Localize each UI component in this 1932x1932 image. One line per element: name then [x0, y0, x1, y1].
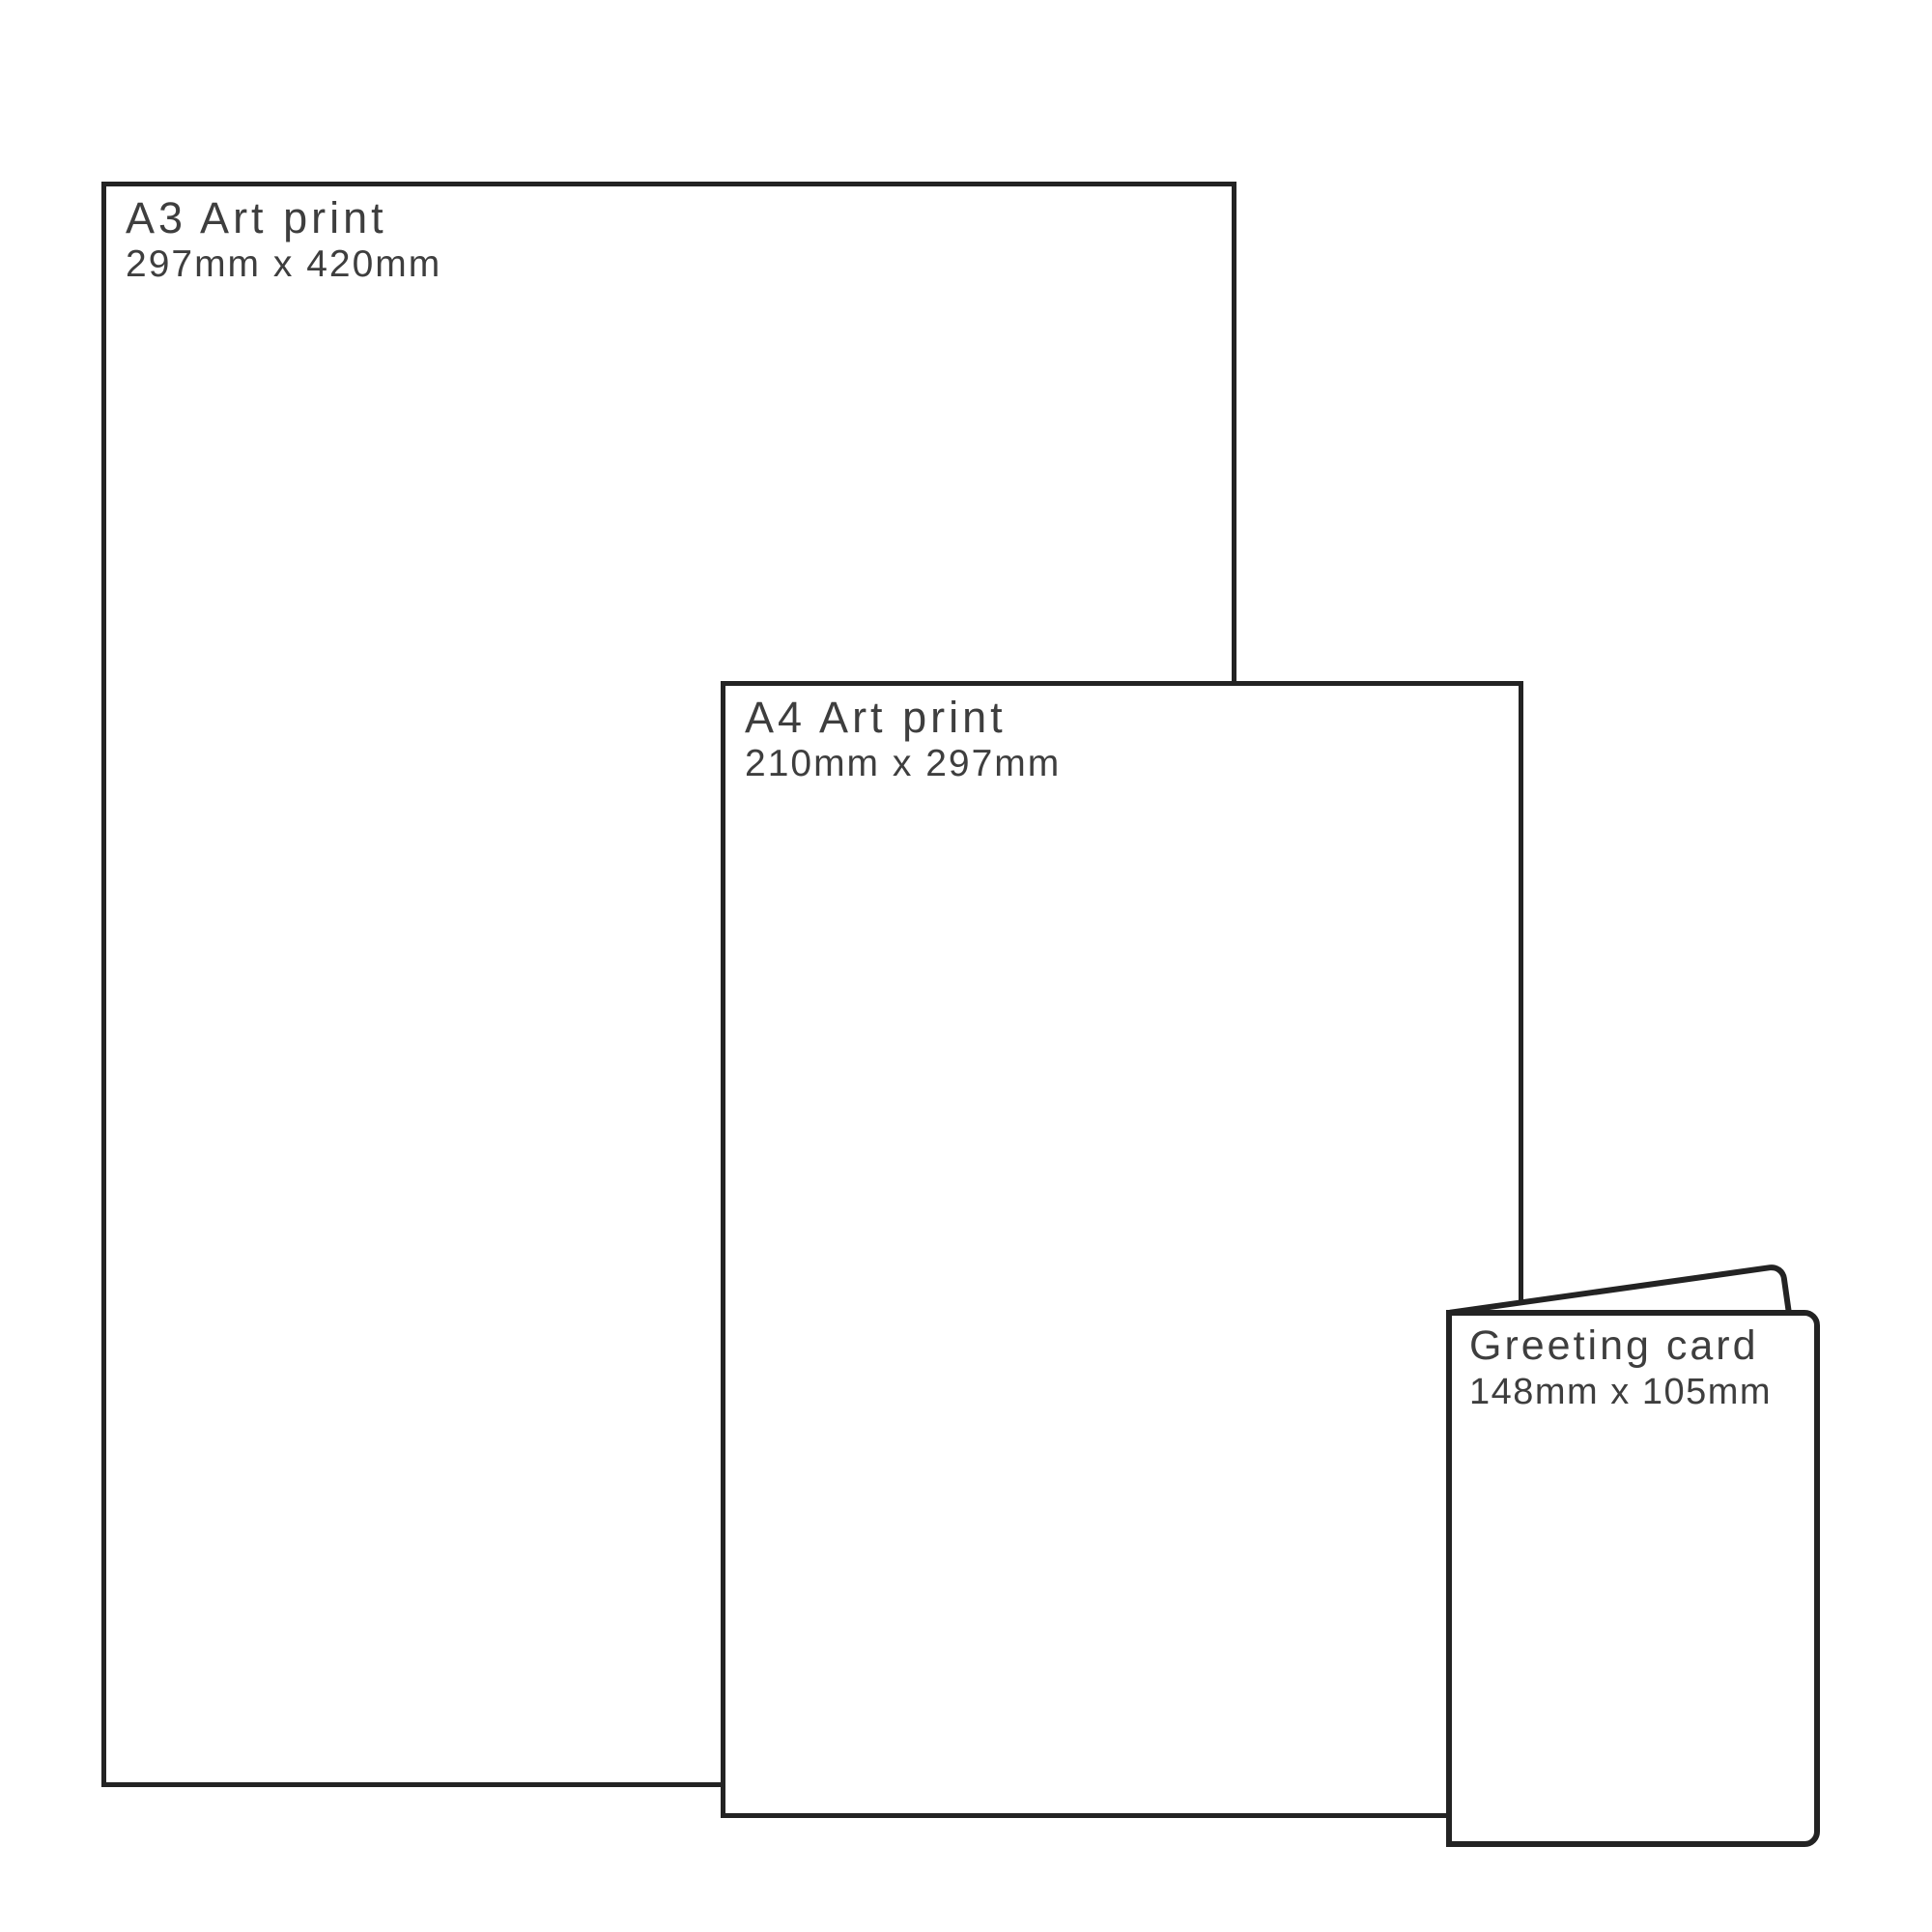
a4-print-label: A4 Art print 210mm x 297mm — [725, 686, 1519, 786]
a4-print-title: A4 Art print — [745, 694, 1519, 742]
greeting-card-title: Greeting card — [1469, 1321, 1814, 1370]
a3-print-label: A3 Art print 297mm x 420mm — [106, 186, 1232, 287]
a3-print-title: A3 Art print — [126, 194, 1232, 242]
size-comparison-diagram: A3 Art print 297mm x 420mm A4 Art print … — [0, 0, 1932, 1932]
a3-print-dimensions: 297mm x 420mm — [126, 242, 1232, 287]
a4-print-outline: A4 Art print 210mm x 297mm — [721, 681, 1523, 1818]
greeting-card-label: Greeting card 148mm x 105mm — [1452, 1316, 1814, 1414]
a4-print-dimensions: 210mm x 297mm — [745, 742, 1519, 786]
greeting-card-dimensions: 148mm x 105mm — [1469, 1370, 1814, 1414]
greeting-card-outline: Greeting card 148mm x 105mm — [1446, 1310, 1820, 1847]
